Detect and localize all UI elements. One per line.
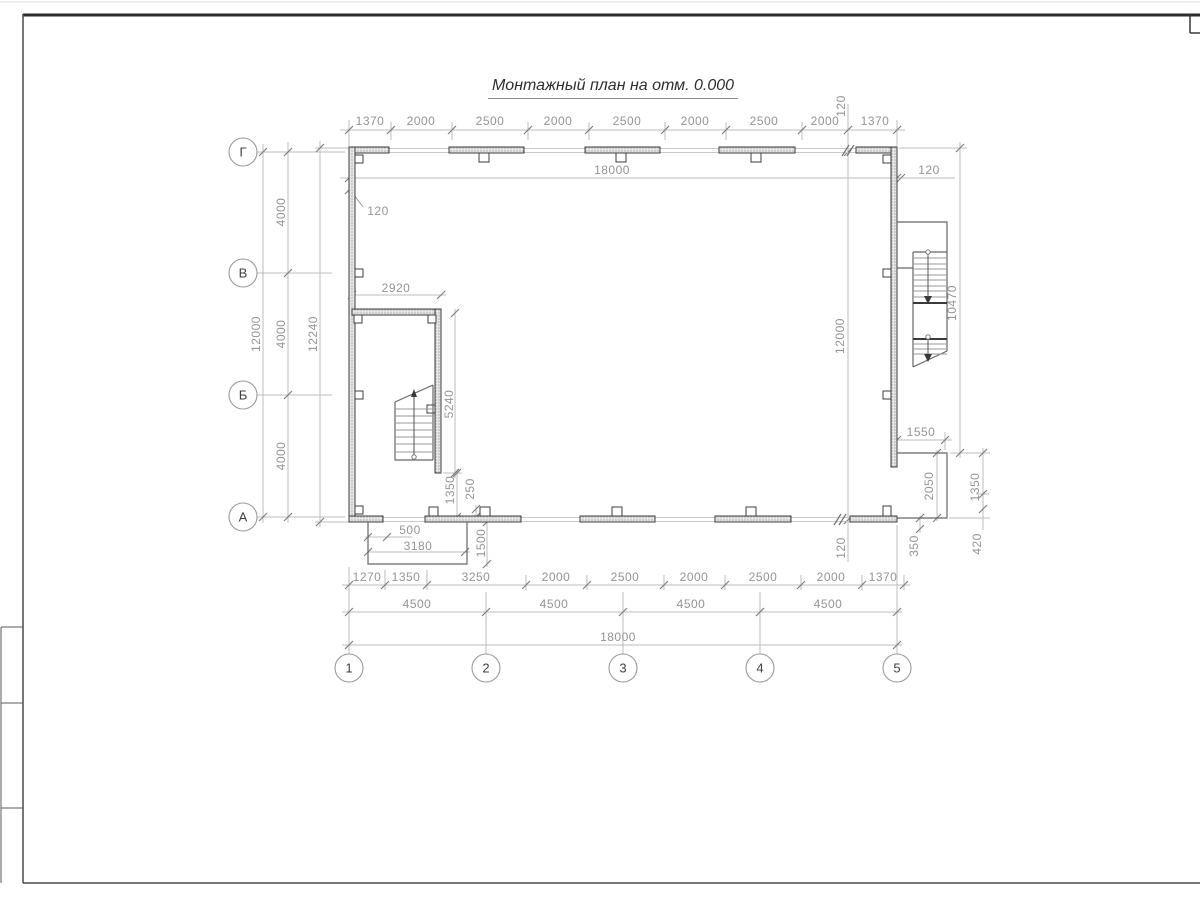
dim-label: 12000 xyxy=(834,318,846,354)
dim-label: 4500 xyxy=(403,598,432,610)
floor-plan-linework xyxy=(0,0,1200,900)
dim-label: 4000 xyxy=(275,442,287,471)
sheet-frame xyxy=(0,2,1200,883)
dim-label: 4500 xyxy=(814,598,843,610)
axis-row-label: Г xyxy=(239,146,246,159)
dim-label: 1270 xyxy=(353,571,382,583)
dim-label: 4000 xyxy=(275,198,287,227)
axis-col-label: 1 xyxy=(345,662,352,675)
axis-col-label: 4 xyxy=(756,662,763,675)
dim-label: 4500 xyxy=(540,598,569,610)
dim-label: 2500 xyxy=(611,571,640,583)
dim-label: 2000 xyxy=(680,571,709,583)
dim-label: 250 xyxy=(464,478,476,500)
dim-label: 1550 xyxy=(907,426,936,438)
dim-label: 10470 xyxy=(946,285,958,321)
axis-row-label: В xyxy=(239,267,248,280)
dim-label: 2500 xyxy=(476,115,505,127)
exterior-stair xyxy=(897,222,947,367)
dim-label: 420 xyxy=(971,533,983,555)
dim-label: 5240 xyxy=(443,390,455,419)
dim-label: 2050 xyxy=(923,472,935,501)
walls xyxy=(349,147,897,522)
dim-label: 12240 xyxy=(307,316,319,352)
dim-label: 4000 xyxy=(275,320,287,349)
dim-label: 120 xyxy=(835,537,847,559)
dim-label: 4500 xyxy=(677,598,706,610)
dim-label: 1370 xyxy=(356,115,385,127)
dim-label: 2000 xyxy=(542,571,571,583)
dim-label: 120 xyxy=(918,164,940,176)
dim-label: 2500 xyxy=(613,115,642,127)
dim-label: 2000 xyxy=(407,115,436,127)
dim-label: 1350 xyxy=(444,476,456,505)
drawing-sheet: Монтажный план на отм. 0.000 Г В Б А 1 2… xyxy=(0,0,1200,900)
dim-label: 2500 xyxy=(750,115,779,127)
dim-label: 2000 xyxy=(544,115,573,127)
dim-label: 3180 xyxy=(404,540,433,552)
axis-col-label: 2 xyxy=(482,662,489,675)
wall-face-lines xyxy=(349,149,897,522)
dim-label: 1500 xyxy=(475,529,487,558)
dim-label: 12000 xyxy=(250,316,262,352)
dim-label: 18000 xyxy=(594,164,630,176)
dim-label: 120 xyxy=(835,95,847,117)
dim-label: 18000 xyxy=(600,631,636,643)
dim-label: 500 xyxy=(399,524,421,536)
dim-label: 120 xyxy=(367,205,389,217)
dim-label: 2500 xyxy=(749,571,778,583)
axis-row-label: Б xyxy=(239,389,248,402)
dim-label: 350 xyxy=(908,535,920,557)
dim-label: 1350 xyxy=(392,571,421,583)
axis-col-label: 3 xyxy=(619,662,626,675)
drawing-title: Монтажный план на отм. 0.000 xyxy=(488,77,738,99)
dim-label: 2000 xyxy=(817,571,846,583)
dim-label: 2920 xyxy=(382,282,411,294)
dim-label: 2000 xyxy=(681,115,710,127)
axis-col-label: 5 xyxy=(893,662,900,675)
dim-label: 1350 xyxy=(969,473,981,502)
dim-label: 1370 xyxy=(861,115,890,127)
dim-label: 2000 xyxy=(811,115,840,127)
dim-label: 3250 xyxy=(462,571,491,583)
axis-bubbles xyxy=(229,138,911,682)
dim-label: 1370 xyxy=(869,571,898,583)
axis-row-label: А xyxy=(239,511,248,524)
interior-stair xyxy=(395,385,433,460)
